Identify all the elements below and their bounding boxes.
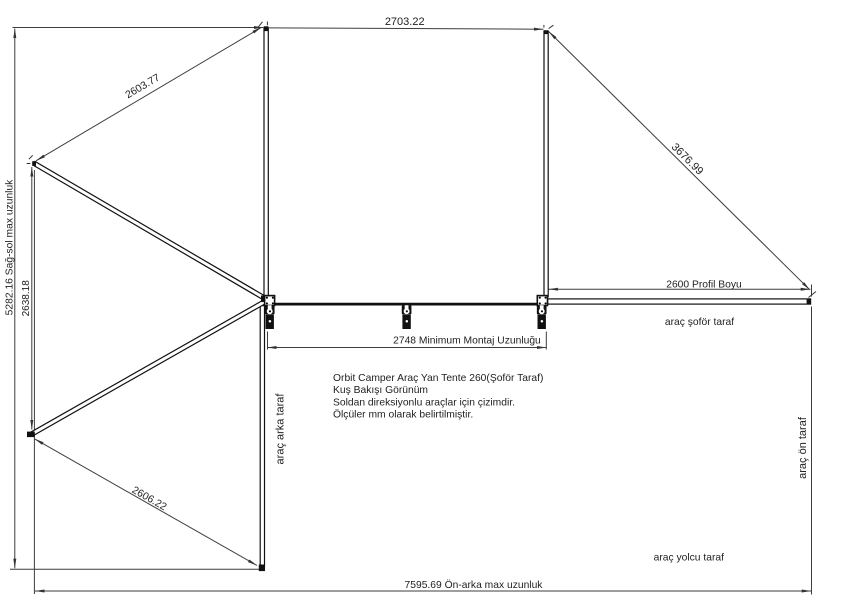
svg-text:2638.18: 2638.18: [21, 280, 32, 317]
svg-text:araç ön taraf: araç ön taraf: [797, 416, 809, 479]
svg-text:7595.69 Ön-arka max uzunluk: 7595.69 Ön-arka max uzunluk: [405, 579, 544, 591]
svg-text:2748 Minimum Montaj Uzunluğu: 2748 Minimum Montaj Uzunluğu: [393, 335, 541, 346]
svg-text:araç arka taraf: araç arka taraf: [275, 393, 287, 465]
svg-text:araç şoför taraf: araç şoför taraf: [665, 317, 734, 328]
svg-text:Ölçüler mm olarak belirtilmişt: Ölçüler mm olarak belirtilmiştir.: [333, 408, 473, 420]
svg-text:5282.16 Sağ-sol max uzunluk: 5282.16 Sağ-sol max uzunluk: [5, 179, 16, 316]
svg-text:araç yolcu taraf: araç yolcu taraf: [654, 553, 725, 564]
svg-text:Soldan direksiyonlu araçlar iç: Soldan direksiyonlu araçlar için çizimdi…: [333, 397, 515, 408]
svg-text:2600 Profil Boyu: 2600 Profil Boyu: [666, 280, 742, 291]
svg-text:Kuş Bakışı Görünüm: Kuş Bakışı Görünüm: [333, 385, 428, 396]
svg-text:Orbit Camper Araç Yan Tente 26: Orbit Camper Araç Yan Tente 260(Şoför Ta…: [333, 373, 543, 384]
svg-text:2703.22: 2703.22: [385, 16, 425, 28]
